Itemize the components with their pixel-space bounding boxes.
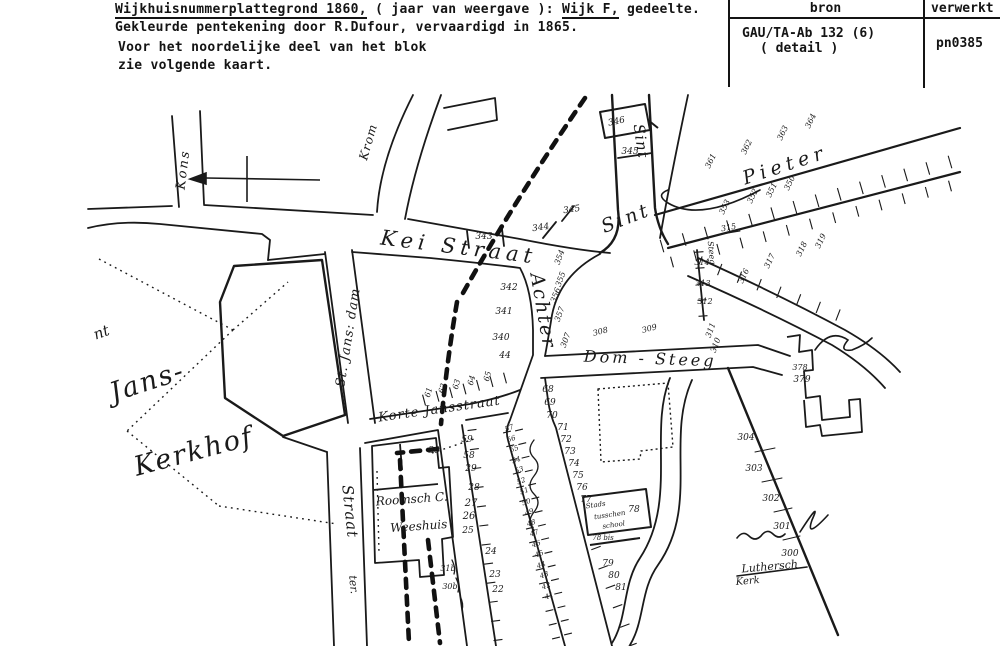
- plot-number: 50: [521, 497, 533, 508]
- plot-number: 31b: [440, 564, 455, 573]
- plot-divider-tick: [558, 606, 566, 608]
- plot-number: 46: [530, 539, 543, 550]
- plot-divider-tick: [948, 156, 952, 168]
- plot-number: 61: [423, 386, 434, 398]
- plot-number: 24: [484, 547, 497, 557]
- plot-number: 58: [463, 451, 475, 461]
- plot-number: 70: [546, 411, 558, 421]
- plot-number: 47: [528, 528, 541, 539]
- plot-divider-tick: [591, 546, 600, 549]
- plot-divider-tick: [504, 373, 507, 384]
- plot-number: 64: [466, 374, 477, 386]
- plot-number: 342: [500, 283, 517, 293]
- plot-divider-tick: [696, 268, 705, 269]
- plot-number: 345: [621, 147, 638, 157]
- plot-number: 26: [462, 511, 476, 522]
- plot-divider-tick: [552, 637, 560, 639]
- plot-divider-tick: [882, 175, 886, 187]
- plot-divider-tick: [860, 182, 864, 194]
- plot-number: 303: [745, 464, 762, 474]
- flourish-g: [815, 336, 872, 351]
- plot-number: 302: [762, 494, 779, 504]
- plot-divider-tick: [477, 380, 480, 391]
- plot-number: 29: [464, 464, 477, 474]
- plot-divider-tick: [879, 200, 882, 211]
- plot-number: 27: [464, 498, 478, 509]
- plot-number: 80: [608, 571, 620, 581]
- plot-divider-tick: [477, 506, 486, 507]
- plot-divider-tick: [541, 538, 549, 540]
- plot-number: 42: [540, 581, 553, 592]
- plot-divider-tick: [531, 497, 539, 499]
- plot-number: 48: [525, 518, 538, 529]
- plot-divider-tick: [763, 231, 766, 242]
- plot-divider-tick: [549, 623, 557, 625]
- plot-number: 54: [511, 455, 522, 466]
- plot-number: 59: [461, 435, 473, 445]
- place-label-roomsch-c: Roomsch C.: [374, 490, 448, 509]
- plot-number: 78: [628, 505, 640, 515]
- plot-number: 319: [813, 232, 828, 250]
- plot-number: 343: [475, 232, 492, 242]
- plot-number: 74: [568, 459, 580, 469]
- plot-divider-tick: [740, 238, 743, 249]
- plot-number: 300: [781, 549, 798, 559]
- plot-number: 355: [554, 270, 568, 287]
- plot-number: 75: [572, 471, 584, 481]
- plot-number: 81: [615, 583, 626, 593]
- plot-divider-tick: [564, 633, 572, 635]
- plot-divider-tick: [815, 195, 819, 207]
- plot-divider-tick: [926, 162, 930, 174]
- plot-divider-tick: [525, 470, 533, 472]
- plot-divider-tick: [484, 563, 493, 564]
- plot-divider-tick: [470, 449, 479, 450]
- plot-divider-tick: [468, 429, 477, 430]
- plot-number: 312: [697, 297, 712, 306]
- plot-number: 301: [773, 522, 790, 532]
- plot-divider-tick: [749, 214, 753, 226]
- place-label-weeshuis: Weeshuis: [390, 517, 448, 535]
- plot-number: 363: [775, 124, 790, 142]
- street-label-kons: Kons: [174, 149, 194, 192]
- compass-west-arrowhead: [190, 173, 206, 184]
- plot-divider-tick: [699, 316, 708, 317]
- plot-number: 63: [451, 378, 462, 390]
- plot-number: 28: [467, 483, 480, 493]
- plot-divider-tick: [695, 252, 704, 253]
- plot-number: 56: [506, 434, 518, 445]
- plot-divider-tick: [793, 201, 797, 213]
- plot-number: 78 bis: [592, 534, 614, 542]
- plot-number: 52: [516, 476, 528, 487]
- street-label-dom-steeg: Dom - Steeg: [583, 347, 717, 371]
- plot-number: 307: [559, 331, 573, 349]
- plot-number: 357: [553, 305, 567, 323]
- plot-ticks-school-street: [591, 546, 636, 646]
- plot-divider-tick: [546, 610, 554, 612]
- janskerkhof-block-outline: [220, 260, 345, 436]
- plot-number: 45: [533, 549, 546, 560]
- plot-divider-tick: [717, 244, 720, 255]
- plot-divider-tick: [561, 619, 569, 621]
- plot-divider-tick: [535, 511, 543, 513]
- plot-divider-tick: [620, 624, 629, 627]
- plot-number: 309: [641, 322, 658, 335]
- plot-number: 68: [542, 385, 554, 395]
- plot-divider-tick: [479, 525, 488, 526]
- plot-number: 76: [576, 483, 588, 493]
- plot-number: 62: [437, 382, 448, 394]
- district-boundary-dashes: [397, 98, 585, 643]
- street-label-krom: Krom: [356, 122, 380, 163]
- plot-number: 340: [492, 333, 509, 343]
- plot-number: 55: [509, 444, 521, 455]
- compass-east-west-line: [206, 178, 320, 180]
- plot-number: 30b: [442, 582, 457, 591]
- plot-number: 77: [580, 495, 592, 505]
- plot-number: 79: [602, 559, 614, 569]
- plot-divider-tick: [606, 585, 615, 588]
- plot-divider-tick: [518, 443, 526, 445]
- plot-number: 30: [428, 446, 440, 456]
- plot-number: 73: [564, 447, 576, 457]
- archival-map-sheet: Wijkhuisnummerplattegrond 1860, ( jaar v…: [0, 0, 1000, 646]
- plot-number: 379: [793, 375, 810, 385]
- plot-divider-tick: [660, 240, 664, 252]
- plot-divider-tick: [548, 565, 556, 567]
- place-label-jans: Jans-: [101, 355, 189, 410]
- plot-number: 51: [519, 486, 530, 497]
- plot-divider-tick: [810, 219, 813, 230]
- plot-number: 49: [523, 507, 536, 518]
- plot-number: 44: [498, 351, 511, 361]
- place-label-kerkhof: Kerkhof: [130, 420, 259, 482]
- plot-divider-tick: [856, 206, 859, 217]
- plot-number: 22: [491, 585, 504, 595]
- street-label-ter: ter.: [346, 575, 361, 595]
- plot-number: 346: [607, 115, 626, 128]
- street-label-straat-vertical: Straat: [338, 484, 361, 539]
- plot-number: 25: [461, 526, 474, 536]
- plot-divider-tick: [538, 524, 546, 526]
- plot-divider-tick: [522, 456, 530, 458]
- plot-number: 362: [739, 138, 754, 156]
- plot-number: 354: [553, 248, 567, 265]
- plot-divider-tick: [551, 579, 559, 581]
- flourish-swirl: [800, 511, 828, 532]
- plot-number: 314: [694, 258, 709, 267]
- plot-number: 361: [703, 152, 718, 170]
- plot-divider-tick: [671, 257, 674, 268]
- map-drawing: KonsKromKei StraatAchterSintPieterSintDo…: [0, 0, 1000, 646]
- plot-number: 53: [514, 465, 526, 476]
- plot-number: 352: [745, 187, 760, 205]
- plot-number: 23: [488, 570, 501, 580]
- plot-number: 341: [495, 307, 512, 317]
- plot-divider-tick: [949, 181, 952, 192]
- plot-divider-tick: [482, 544, 491, 545]
- plot-number: 317: [762, 251, 777, 269]
- plot-number: 364: [803, 112, 818, 130]
- place-label-kerk: Kerk: [734, 575, 760, 588]
- plot-number: 308: [592, 325, 609, 338]
- plot-divider-tick: [796, 294, 800, 305]
- plot-divider-tick: [554, 592, 562, 594]
- plot-divider-tick: [837, 188, 841, 200]
- plot-divider-tick: [925, 187, 928, 198]
- plot-number: 71: [557, 423, 568, 433]
- plot-divider-tick: [613, 604, 622, 607]
- place-label-luthersch: Luthersch: [740, 558, 798, 576]
- plot-number: 69: [544, 398, 556, 408]
- flourish-wiggle: [737, 531, 785, 539]
- plot-number: 313: [695, 279, 710, 288]
- plot-number: 318: [794, 240, 809, 258]
- plot-number: 72: [560, 435, 572, 445]
- plot-number: 378: [792, 363, 807, 372]
- plot-divider-tick: [816, 302, 820, 313]
- plot-divider-tick: [757, 279, 761, 290]
- plot-divider-tick: [515, 429, 523, 431]
- plot-number: 43: [538, 570, 551, 581]
- plot-divider-tick: [489, 601, 498, 602]
- place-label-fragment-nt: nt: [91, 321, 113, 344]
- plot-divider-tick: [545, 551, 553, 553]
- compass: [190, 156, 320, 202]
- street-label-kei-straat: Kei Straat: [378, 225, 538, 268]
- plot-divider-tick: [486, 582, 495, 583]
- plot-number: 345: [563, 204, 582, 216]
- plot-divider-tick: [833, 212, 836, 223]
- plot-number: 353: [717, 198, 732, 216]
- plot-divider-tick: [836, 309, 840, 320]
- plot-divider-tick: [771, 207, 775, 219]
- plot-number: 44: [535, 560, 547, 571]
- plot-divider-tick: [904, 169, 908, 181]
- place-label-school: school: [602, 519, 626, 530]
- plot-divider-tick: [786, 225, 789, 236]
- plot-number: 311: [704, 321, 718, 338]
- plot-number: 304: [737, 433, 754, 443]
- plot-number: 57: [504, 423, 516, 434]
- plot-divider-tick: [902, 193, 905, 204]
- plot-divider-tick: [463, 384, 466, 395]
- street-label-sint: Sint: [598, 199, 653, 238]
- street-label-st-jans-dam: St. Jans: dam: [333, 287, 364, 388]
